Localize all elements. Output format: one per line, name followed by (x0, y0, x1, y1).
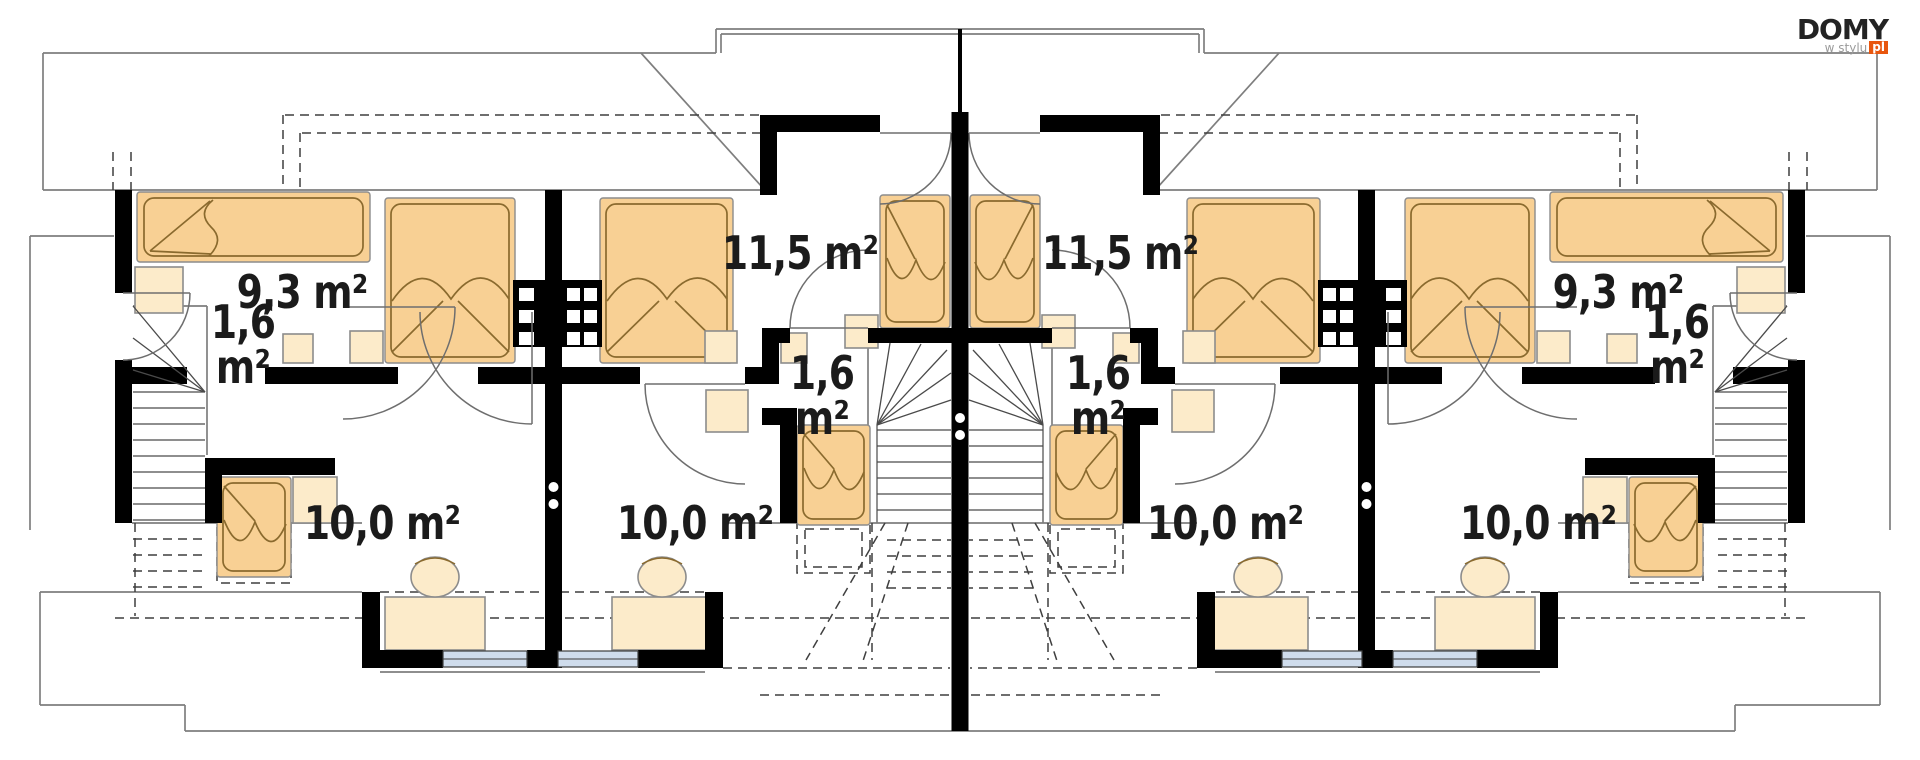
hall-area-line2: m² (790, 396, 854, 441)
logo-tagline: w stylu (1825, 42, 1868, 54)
hall-area-line1: 1,6 (211, 300, 275, 345)
logo-tld-badge: pl (1869, 41, 1888, 54)
room-label-bedroom-left-inner: 11,5 m² (722, 230, 878, 276)
hall-area-line2: m² (211, 345, 275, 390)
hall-area-line1: 1,6 (1645, 300, 1709, 345)
wall-vent-dot (549, 482, 559, 492)
hall-area-line2: m² (1066, 396, 1130, 441)
floor-plan-drawing (0, 0, 1920, 760)
brand-logo: DOMY w stylu pl (1788, 16, 1888, 54)
room-label-hall-right-outer: 1,6 m² (1645, 300, 1709, 390)
wall-vent-dot (549, 499, 559, 509)
room-label-room-right-outer: 10,0 m² (1460, 500, 1616, 546)
room-label-hall-right-inner: 1,6 m² (1066, 351, 1130, 441)
room-label-room-left-inner: 10,0 m² (617, 500, 773, 546)
hall-area-line1: 1,6 (790, 351, 854, 396)
room-label-bedroom-right-inner: 11,5 m² (1042, 230, 1198, 276)
room-label-hall-left-outer: 1,6 m² (211, 300, 275, 390)
room-label-room-left-outer: 10,0 m² (304, 500, 460, 546)
floor-plan-page: 9,3 m² 11,5 m² 11,5 m² 9,3 m² 1,6 m² 1,6… (0, 0, 1920, 760)
room-label-room-right-inner: 10,0 m² (1147, 500, 1303, 546)
party-wall-center (952, 29, 969, 731)
hall-area-line2: m² (1645, 345, 1709, 390)
room-label-hall-left-inner: 1,6 m² (790, 351, 854, 441)
hall-area-line1: 1,6 (1066, 351, 1130, 396)
